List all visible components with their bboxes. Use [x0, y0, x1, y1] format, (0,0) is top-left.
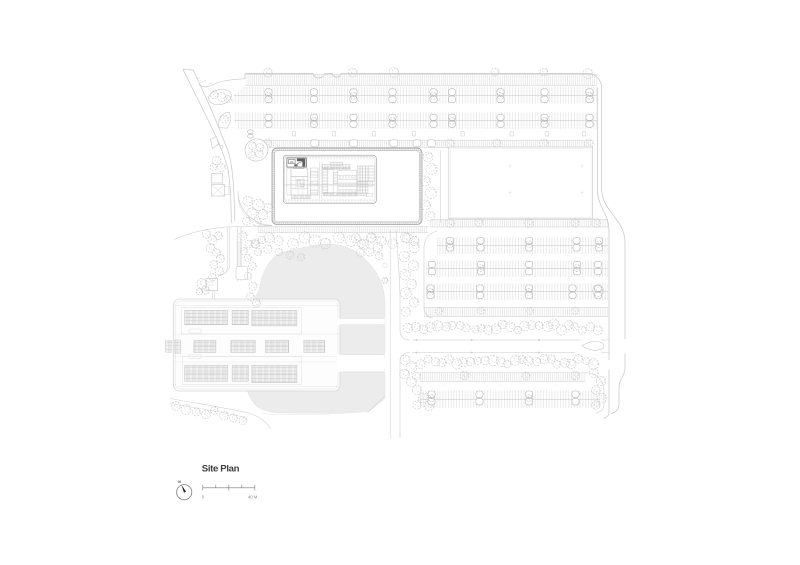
svg-text:40 M: 40 M: [248, 495, 258, 500]
svg-text:Site Plan: Site Plan: [202, 463, 240, 474]
